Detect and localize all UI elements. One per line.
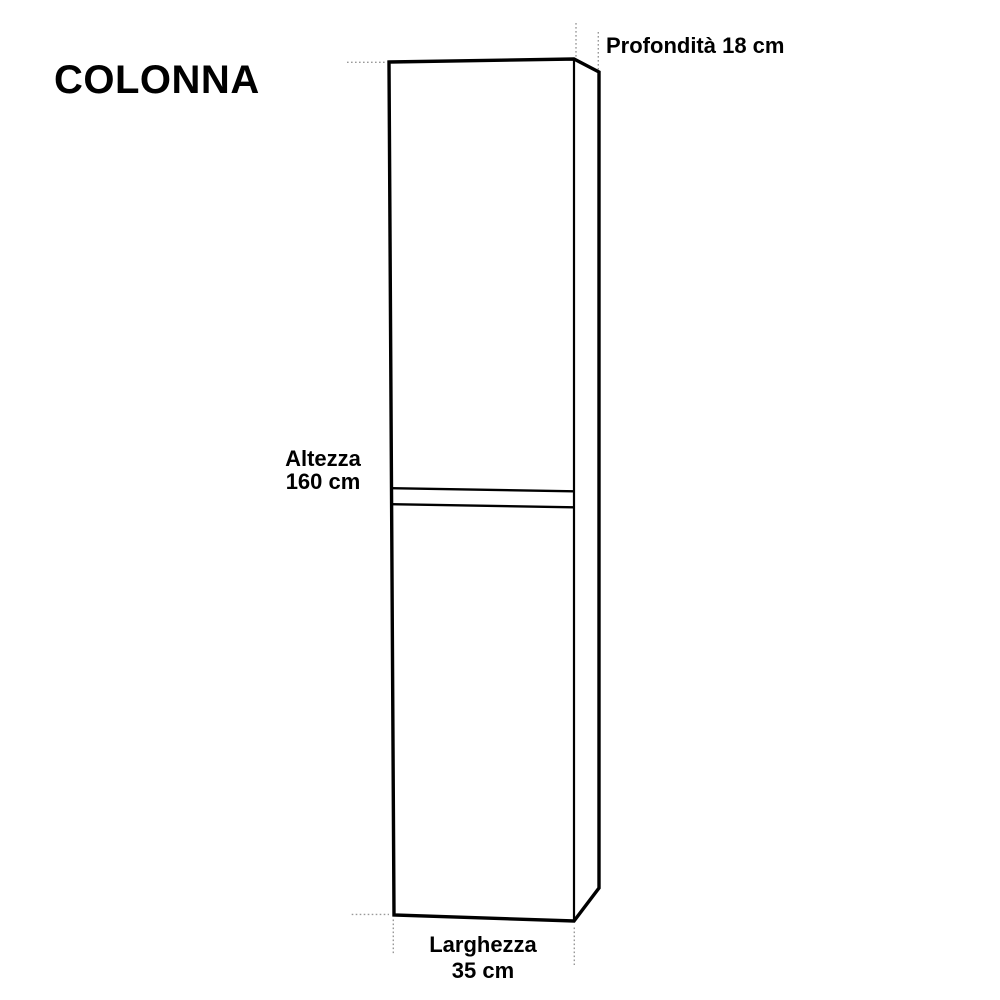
height-label-word: Altezza: [253, 447, 393, 470]
height-label-value: 160 cm: [253, 470, 393, 493]
width-dimension-label: Larghezza 35 cm: [413, 932, 553, 984]
cabinet-drawing: [0, 0, 1000, 1000]
diagram-canvas: COLONNA Profondità 18 cm Altezza 160 cm …: [0, 0, 1000, 1000]
height-dimension-label: Altezza 160 cm: [253, 447, 393, 493]
width-label-value: 35 cm: [413, 958, 553, 984]
diagram-title: COLONNA: [54, 58, 260, 102]
depth-dimension-label: Profondità 18 cm: [606, 33, 784, 59]
width-label-word: Larghezza: [413, 932, 553, 958]
